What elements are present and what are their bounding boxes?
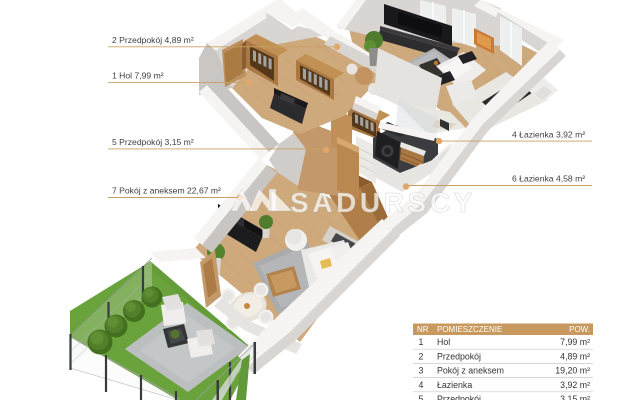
svg-text:Przedpokój: Przedpokój [437,351,481,361]
svg-text:4: 4 [419,380,424,390]
svg-text:5: 5 [419,394,424,400]
svg-text:3,92 m²: 3,92 m² [560,380,590,390]
svg-text:Przedpokój: Przedpokój [437,394,481,400]
svg-text:19,20 m²: 19,20 m² [555,366,590,376]
svg-text:POMIESZCZENIE: POMIESZCZENIE [437,325,502,334]
svg-text:4,89 m²: 4,89 m² [560,351,590,361]
svg-text:7 Pokój z aneksem 22,67 m²: 7 Pokój z aneksem 22,67 m² [112,186,221,196]
svg-text:NR: NR [417,325,429,334]
svg-text:5 Przedpokój 3,15 m²: 5 Przedpokój 3,15 m² [112,137,194,147]
svg-text:Łazienka: Łazienka [437,380,472,390]
svg-text:3,15 m²: 3,15 m² [560,394,590,400]
svg-text:3: 3 [419,366,424,376]
svg-text:SADURSCY: SADURSCY [290,187,476,218]
svg-text:4 Łazienka 3,92 m²: 4 Łazienka 3,92 m² [512,130,585,140]
svg-text:2 Przedpokój 4,89 m²: 2 Przedpokój 4,89 m² [112,35,194,45]
svg-text:Pokój z aneksem: Pokój z aneksem [437,366,504,376]
svg-text:1: 1 [419,337,424,347]
svg-text:2: 2 [419,351,424,361]
svg-text:6 Łazienka 4,58 m²: 6 Łazienka 4,58 m² [512,174,585,184]
svg-text:7,99 m²: 7,99 m² [560,337,590,347]
svg-text:Hol: Hol [437,337,450,347]
svg-text:1 Hol 7,99 m²: 1 Hol 7,99 m² [112,71,164,81]
svg-text:POW.: POW. [569,325,590,334]
